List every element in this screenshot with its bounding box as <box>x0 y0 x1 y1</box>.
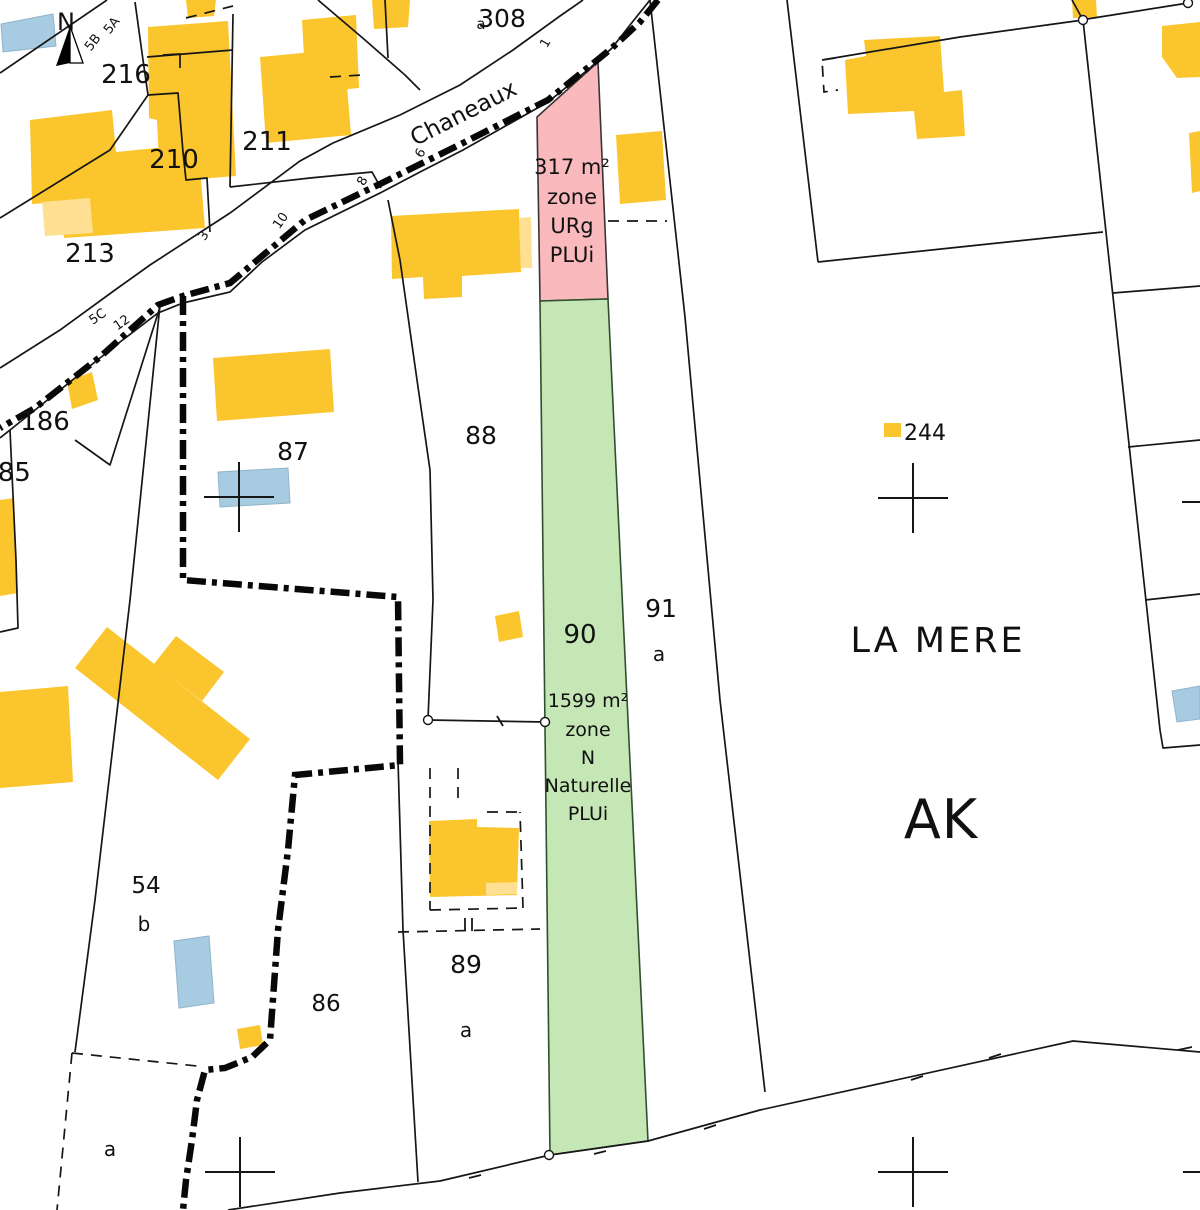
building-overhang <box>519 217 532 268</box>
building-overhang <box>486 882 517 895</box>
address-number: 8 <box>354 174 371 189</box>
parcel-boundary-line <box>1160 730 1200 748</box>
building-footprint <box>845 36 965 139</box>
parcel-number-186: 186 <box>20 407 70 437</box>
cadastral-map: N24421621121021330818618587889091548689a… <box>0 0 1200 1210</box>
survey-point <box>1184 0 1193 8</box>
parcel-ref-244-marker <box>884 423 901 437</box>
zone-n-label-line: zone <box>565 719 610 741</box>
parcel-boundary-line <box>398 760 418 1182</box>
parcel-boundary-line <box>1145 594 1200 600</box>
building-footprint <box>495 611 523 642</box>
parcel-number-54: 54 <box>131 873 160 899</box>
address-number: 1 <box>537 36 554 51</box>
parcel-boundary-line <box>822 20 1083 60</box>
building-footprint-blue <box>1172 686 1200 722</box>
survey-point <box>545 1151 554 1160</box>
building-footprint <box>1162 22 1200 78</box>
map-canvas: N24421621121021330818618587889091548689a… <box>0 0 1200 1210</box>
parcel-number-213: 213 <box>65 239 115 269</box>
parcel-subdivision-letter: b <box>138 912 151 936</box>
parcel-number-90: 90 <box>563 620 596 650</box>
parcel-number-216: 216 <box>101 60 151 90</box>
zone-n-label-line: N <box>581 747 595 769</box>
boundary-tick <box>469 1175 481 1178</box>
parcel-number-91: 91 <box>645 594 677 623</box>
parcel-boundary-line <box>787 0 818 262</box>
parcel-boundary-line <box>650 0 765 1092</box>
address-number: 12 <box>111 312 133 334</box>
parcel-boundary-dashed <box>72 1053 197 1066</box>
parcel-boundary-line <box>1113 286 1200 293</box>
building-footprint <box>616 131 666 204</box>
building-footprint <box>372 0 410 29</box>
parcel-boundary-dashed <box>822 58 838 92</box>
building-footprint-blue <box>1 14 56 52</box>
address-number: 5C <box>87 306 110 328</box>
building-overhang <box>42 198 93 236</box>
parcel-boundary-line <box>1087 3 1188 19</box>
zone-urg-label-line: URg <box>550 214 593 238</box>
building-footprint <box>0 686 73 788</box>
building-footprint <box>391 209 521 299</box>
parcel-boundary-line <box>428 720 545 722</box>
building-footprint <box>75 627 250 780</box>
building-footprint <box>213 349 334 421</box>
parcel-subdivision-letter: a <box>653 642 665 666</box>
building-footprint-blue <box>218 468 290 507</box>
parcel-number-86: 86 <box>311 991 340 1017</box>
parcel-number-89: 89 <box>450 950 482 979</box>
building-footprint <box>1189 131 1200 193</box>
parcel-subdivision-letter: a <box>104 1137 116 1161</box>
parcel-boundary-dashed <box>430 908 523 910</box>
parcel-boundary-line <box>818 232 1103 262</box>
parcel-boundary-line <box>1128 440 1200 447</box>
zone-n-label-line: PLUi <box>568 803 608 825</box>
parcel-number-88: 88 <box>465 421 497 450</box>
survey-point <box>1079 16 1088 25</box>
parcel-subdivision-letter: a <box>476 15 485 33</box>
parcel-number-210: 210 <box>149 145 199 175</box>
section-label-ak: AK <box>904 788 979 851</box>
parcel-number-211: 211 <box>242 127 292 157</box>
parcel-subdivision-letter: a <box>460 1018 472 1042</box>
parcel-boundary-dashed <box>398 929 540 932</box>
locality-name-la-mere: LA MERE <box>850 621 1025 661</box>
address-number: 10 <box>270 210 292 232</box>
building-footprint <box>237 1025 263 1049</box>
parcel-boundary-dashed <box>520 812 523 908</box>
building-footprint <box>67 372 98 409</box>
boundary-tick <box>594 1151 606 1154</box>
zone-n-label-line: 1599 m² <box>548 690 629 712</box>
zone-urg-label-line: zone <box>547 185 597 209</box>
boundary-tick <box>1178 1047 1192 1050</box>
parcel-number-87: 87 <box>277 437 309 466</box>
zone-urg-label-line: PLUi <box>550 243 595 267</box>
zone-n-label-line: Naturelle <box>545 775 632 797</box>
parcel-boundary-dashed <box>57 1053 72 1210</box>
address-number: 5A <box>101 14 123 37</box>
building-footprint <box>186 0 216 18</box>
address-number: 5B <box>82 31 104 54</box>
survey-point <box>424 716 433 725</box>
north-label: N <box>57 8 75 36</box>
zone-urg-label-line: 317 m² <box>534 155 610 179</box>
parcel-number-185: 185 <box>0 458 31 488</box>
building-footprint-blue <box>174 936 214 1008</box>
parcel-boundary-line <box>1083 20 1160 730</box>
parcel-ref-244: 244 <box>904 421 946 446</box>
survey-point <box>541 718 550 727</box>
